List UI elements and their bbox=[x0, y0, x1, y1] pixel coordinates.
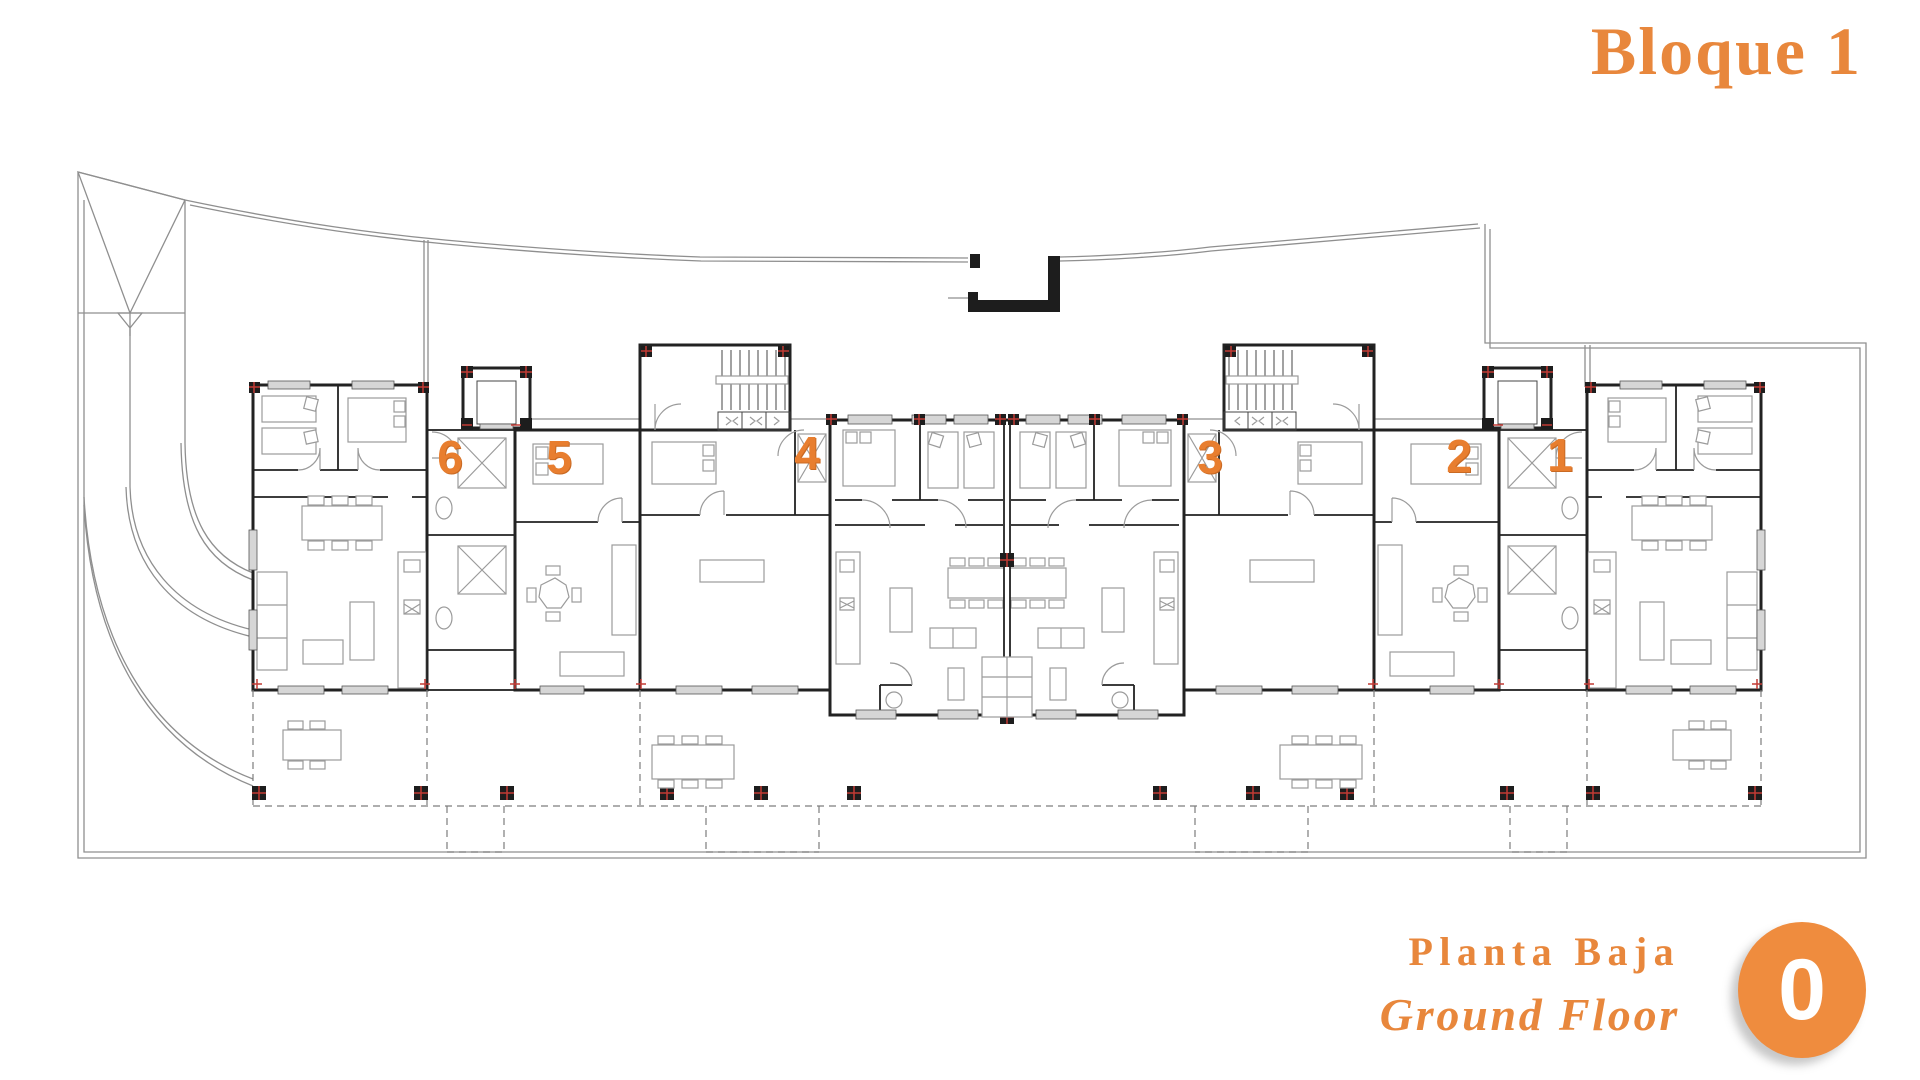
floor-plan-drawing bbox=[0, 0, 1920, 1080]
building-right-half bbox=[1007, 345, 1765, 852]
unit-label-1: 1 bbox=[1547, 428, 1573, 482]
unit-label-4: 4 bbox=[794, 426, 820, 480]
building-left-half bbox=[249, 345, 1007, 852]
block-title: Bloque 1 bbox=[1591, 12, 1862, 91]
unit-label-5: 5 bbox=[546, 430, 572, 484]
floor-number: 0 bbox=[1778, 947, 1826, 1033]
unit-label-3: 3 bbox=[1197, 430, 1223, 484]
floor-name-spanish: Planta Baja bbox=[1408, 928, 1680, 975]
floor-name-english: Ground Floor bbox=[1380, 988, 1680, 1041]
floor-number-badge: 0 bbox=[1738, 922, 1866, 1058]
unit-label-6: 6 bbox=[437, 430, 463, 484]
unit-label-2: 2 bbox=[1446, 429, 1472, 483]
floor-plan-page: Bloque 1 6 5 4 3 2 1 Planta Baja Ground … bbox=[0, 0, 1920, 1080]
